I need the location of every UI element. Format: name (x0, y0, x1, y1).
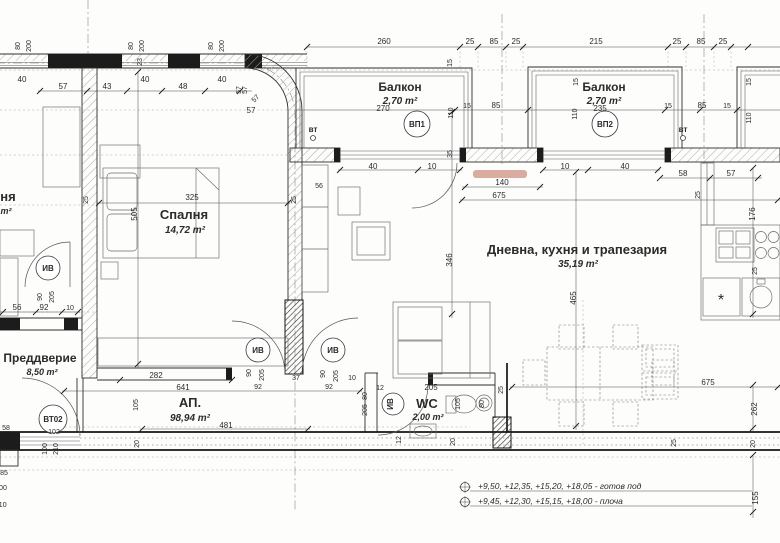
dim-label: 10 (561, 162, 570, 171)
dim-label: 12 (396, 436, 403, 444)
dim-label: 57 (242, 86, 249, 94)
dim-label: 25 (83, 196, 90, 204)
area-label-entry: 8,50 m² (26, 367, 58, 377)
dim-label: 57 (251, 94, 262, 105)
floorplan-page: 80 200 80 200 80 200 40 40 40 57 43 48 5… (0, 0, 780, 543)
dim-label: 235 (593, 104, 607, 113)
dim-label: 210 (53, 443, 60, 455)
dim-label: 10 (428, 162, 437, 171)
dim-label: 40 (218, 75, 227, 84)
tag-iv-living: ИВ (327, 346, 339, 355)
dim-label: 100 (42, 443, 49, 455)
dim-label: 57 (236, 86, 243, 94)
dim-label: 58 (2, 425, 10, 432)
kitchen-cabinets-low (642, 345, 678, 399)
dim-label: 205 (49, 291, 56, 303)
tag-iv-wc: ИВ (386, 398, 395, 410)
tag-iv-neighbor: ИВ (42, 264, 54, 273)
dim-label: 105 (455, 398, 462, 410)
dim-label: 481 (219, 421, 233, 430)
dim-label: 260 (377, 37, 391, 46)
dim-label: 40 (18, 75, 27, 84)
sink (750, 286, 772, 308)
dim-label: 15 (723, 103, 731, 110)
dim-label: 15 (664, 103, 672, 110)
area-label-neighbor: m² (1, 206, 13, 216)
room-label-neighbor: ня (0, 189, 15, 204)
vent-symbol-1 (311, 136, 316, 141)
dim-label: 10 (66, 305, 74, 312)
wardrobe-neighbor (43, 107, 80, 187)
room-label-apartment: АП. (179, 395, 201, 410)
dim-label: 90 (246, 369, 253, 377)
furniture (0, 107, 780, 438)
room-label-bedroom: Спалня (160, 207, 208, 222)
room-label-balcony2: Балкон (582, 80, 625, 94)
balcony-railings (296, 67, 780, 148)
dim-label: 23 (137, 58, 144, 66)
dim-label: 15 (573, 78, 580, 86)
dim-label: 675 (492, 191, 506, 200)
dim-label: 40 (621, 162, 630, 171)
dim-label: 10 (348, 375, 356, 382)
dimension-lines (0, 44, 780, 518)
dim-label: 58 (679, 169, 688, 178)
dim-label: 57 (727, 169, 736, 178)
dim-label: 200 (139, 40, 146, 52)
dim-label: 25 (466, 37, 475, 46)
dim-label: 465 (569, 291, 578, 305)
dim-label: 92 (325, 384, 333, 391)
dim-label: 346 (445, 253, 454, 267)
dim-label: 12 (376, 385, 384, 392)
dimension-ticks (0, 44, 780, 515)
sofa-large (393, 302, 490, 378)
tag-vt02-num: 102 (48, 429, 60, 436)
room-label-living: Дневна, кухня и трапезария (487, 242, 667, 257)
dim-label: 262 (750, 402, 759, 416)
dim-label: 282 (149, 371, 163, 380)
labels: 80 200 80 200 80 200 40 40 40 57 43 48 5… (0, 37, 760, 509)
dim-label: 25 (719, 37, 728, 46)
dim-label: 92 (40, 303, 49, 312)
dim-label: 85 (492, 101, 501, 110)
dim-label: 80 (362, 392, 369, 400)
dim-label: 25 (512, 37, 521, 46)
tag-vp1: ВП1 (409, 120, 426, 129)
dim-label: 80 (479, 400, 486, 408)
dim-label: 325 (185, 193, 199, 202)
dim-label: 85 (490, 37, 499, 46)
area-label-living: 35,19 m² (558, 259, 599, 270)
dim-label: 85 (698, 101, 707, 110)
vent-label-2: вт (679, 125, 688, 134)
dim-label: 205 (333, 370, 340, 382)
dim-label: 80 (208, 42, 215, 50)
dim-label: 25 (671, 439, 678, 447)
dim-label: 25 (752, 267, 759, 275)
dim-label: 641 (176, 383, 190, 392)
dim-label: 85 (0, 470, 8, 477)
area-label-wc: 2,00 m² (411, 412, 444, 422)
dim-label: 85 (697, 37, 706, 46)
area-label-apartment: 98,94 m² (170, 413, 211, 424)
dim-label: 56 (315, 183, 323, 190)
dim-label: 110 (572, 108, 579, 119)
dim-label: 48 (179, 82, 188, 91)
asterisk-symbol: * (718, 292, 724, 309)
dim-label: 110 (0, 502, 7, 509)
dim-label: 90 (320, 370, 327, 378)
dim-label: 15 (447, 59, 454, 67)
room-label-balcony1: Балкон (378, 80, 421, 94)
tag-vt02: ВТ02 (43, 415, 63, 424)
dim-label: 105 (133, 399, 140, 411)
dim-label: 25 (291, 196, 298, 204)
oven (716, 228, 754, 262)
dim-label: 205 (424, 383, 438, 392)
dim-label: 80 (15, 42, 22, 50)
dim-label: 110 (448, 107, 455, 118)
tag-iv-bedroom: ИВ (252, 346, 264, 355)
dim-label: 35 (447, 150, 454, 158)
dim-label: 37 (292, 375, 300, 382)
dim-label: 57 (59, 82, 68, 91)
area-label-bedroom: 14,72 m² (165, 225, 206, 236)
kitchen-counter (701, 225, 780, 320)
level-markers (459, 481, 471, 508)
dim-label: 15 (463, 103, 471, 110)
dim-label: 176 (748, 207, 757, 221)
floor-plan: 80 200 80 200 80 200 40 40 40 57 43 48 5… (0, 0, 780, 543)
dim-label: 200 (26, 40, 33, 52)
dim-label: 43 (103, 82, 112, 91)
dim-label: 57 (247, 106, 256, 115)
dim-label: 25 (673, 37, 682, 46)
room-label-entry: Преддверие (3, 351, 76, 365)
dim-label: 80 (128, 42, 135, 50)
dim-label: 15 (746, 78, 753, 86)
dim-label: 140 (495, 178, 509, 187)
dim-label: 110 (746, 112, 753, 123)
tag-vp2: ВП2 (597, 120, 614, 129)
dim-label: 100 (0, 485, 7, 492)
dim-label: 270 (376, 104, 390, 113)
radiator-mark (473, 170, 527, 178)
dining-set (523, 325, 674, 426)
dim-label: 25 (695, 191, 702, 199)
dim-label: 675 (701, 378, 715, 387)
level-note-floor: +9,50, +12,35, +15,20, +18,05 - готов по… (478, 481, 642, 491)
dim-label: 20 (134, 440, 141, 448)
dim-label: 40 (369, 162, 378, 171)
dim-label: 40 (141, 75, 150, 84)
dim-label: 205 (362, 404, 369, 416)
dim-label: 56 (13, 303, 22, 312)
vent-label-1: вт (309, 125, 318, 134)
dim-label: 505 (130, 207, 139, 221)
dim-label: 155 (751, 491, 760, 505)
room-label-wc: WC (416, 396, 438, 411)
dim-label: 90 (37, 293, 44, 301)
dim-label: 20 (450, 438, 457, 446)
dim-label: 215 (589, 37, 603, 46)
dim-label: 92 (254, 384, 262, 391)
dim-label: 25 (498, 386, 505, 394)
dim-label: 205 (259, 369, 266, 381)
hob (756, 232, 780, 259)
level-note-slab: +9,45, +12,30, +15,15, +18,00 - плоча (478, 496, 623, 506)
dim-label: 200 (219, 40, 226, 52)
vent-symbol-2 (681, 136, 686, 141)
dim-label: 20 (750, 440, 757, 448)
